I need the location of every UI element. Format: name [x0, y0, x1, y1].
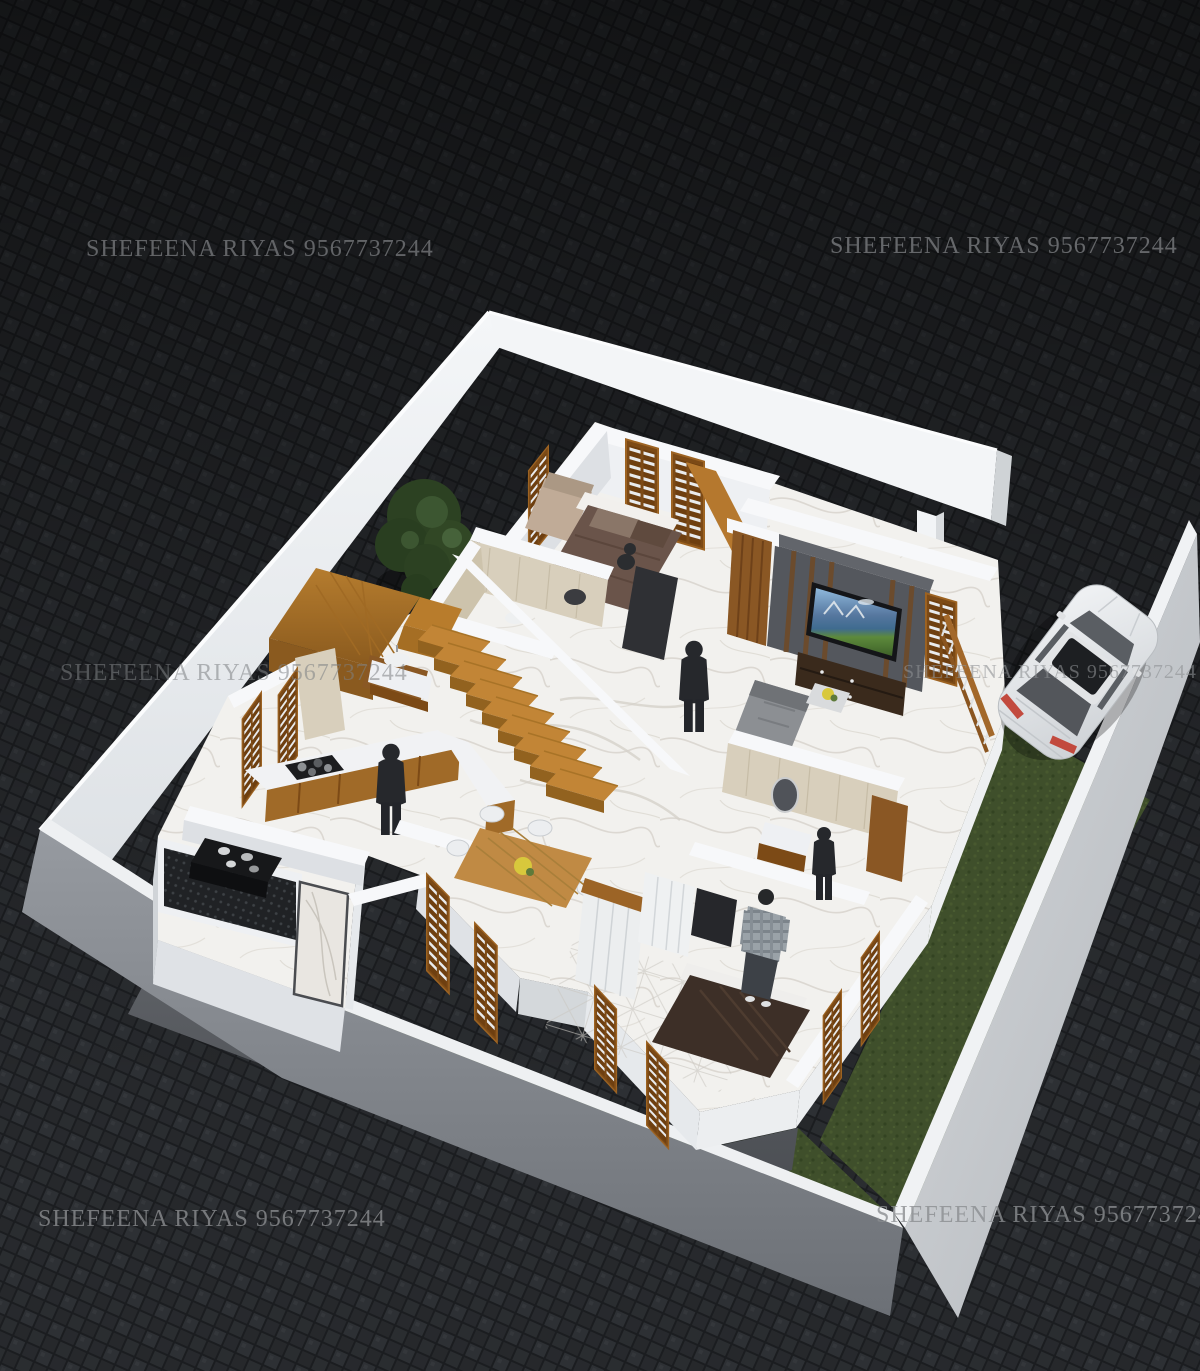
watermark: SHEFEENA RIYAS 9567737244 — [903, 661, 1197, 684]
oval-mirror — [772, 778, 798, 812]
render-canvas: SHEFEENA RIYAS 9567737244 SHEFEENA RIYAS… — [0, 0, 1200, 1371]
bathroom-door — [866, 795, 908, 882]
watermark: SHEFEENA RIYAS 9567737244 — [830, 233, 1178, 260]
bathroom-stool — [564, 589, 586, 605]
watermark: SHEFEENA RIYAS 9567737244 — [60, 660, 408, 687]
white-door-panels — [638, 872, 695, 957]
marble-door — [294, 882, 348, 1006]
watermark: SHEFEENA RIYAS 9567737244 — [86, 236, 434, 263]
watermark: SHEFEENA RIYAS 9567737244 — [876, 1202, 1200, 1229]
wardrobe — [575, 878, 645, 1000]
watermark: SHEFEENA RIYAS 9567737244 — [38, 1206, 386, 1233]
